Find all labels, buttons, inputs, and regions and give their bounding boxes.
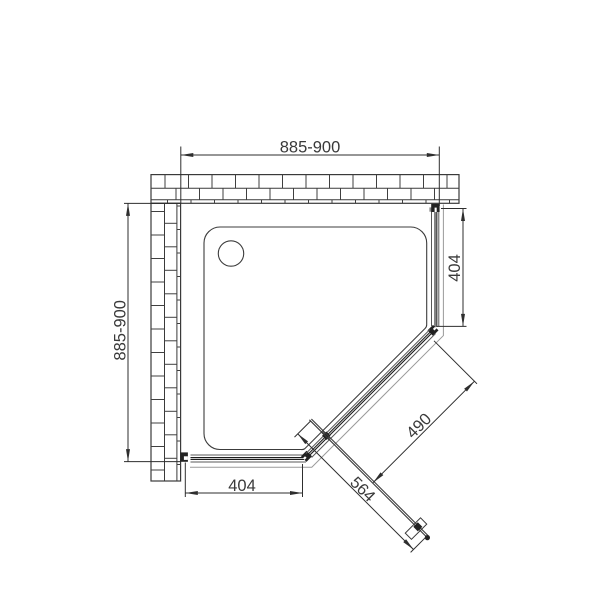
svg-text:404: 404 xyxy=(228,477,256,495)
svg-text:404: 404 xyxy=(446,254,464,282)
svg-text:885-900: 885-900 xyxy=(112,300,130,361)
svg-text:885-900: 885-900 xyxy=(280,138,341,156)
